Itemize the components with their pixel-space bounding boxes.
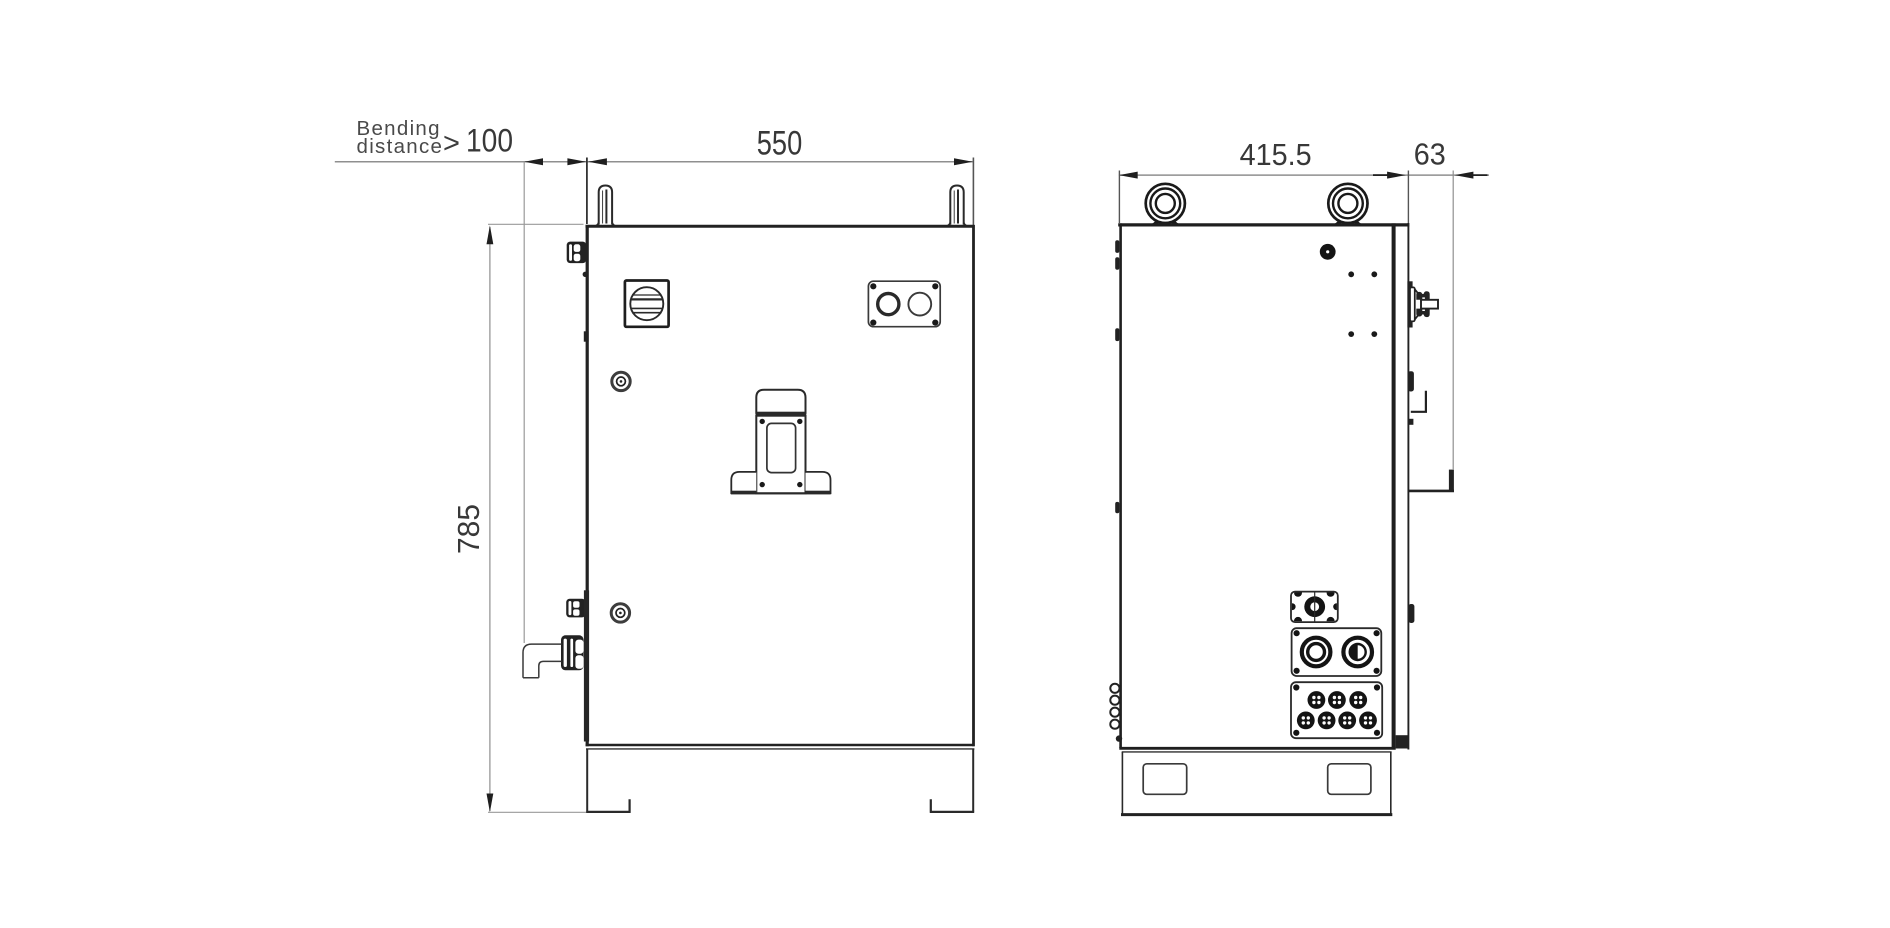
- svg-text:63: 63: [1414, 137, 1446, 172]
- svg-text:distance: distance: [357, 135, 444, 158]
- svg-text:550: 550: [757, 125, 803, 163]
- svg-text:785: 785: [451, 504, 486, 554]
- svg-text:100: 100: [466, 122, 513, 158]
- svg-text:415.5: 415.5: [1240, 137, 1312, 172]
- svg-text:>: >: [443, 127, 460, 159]
